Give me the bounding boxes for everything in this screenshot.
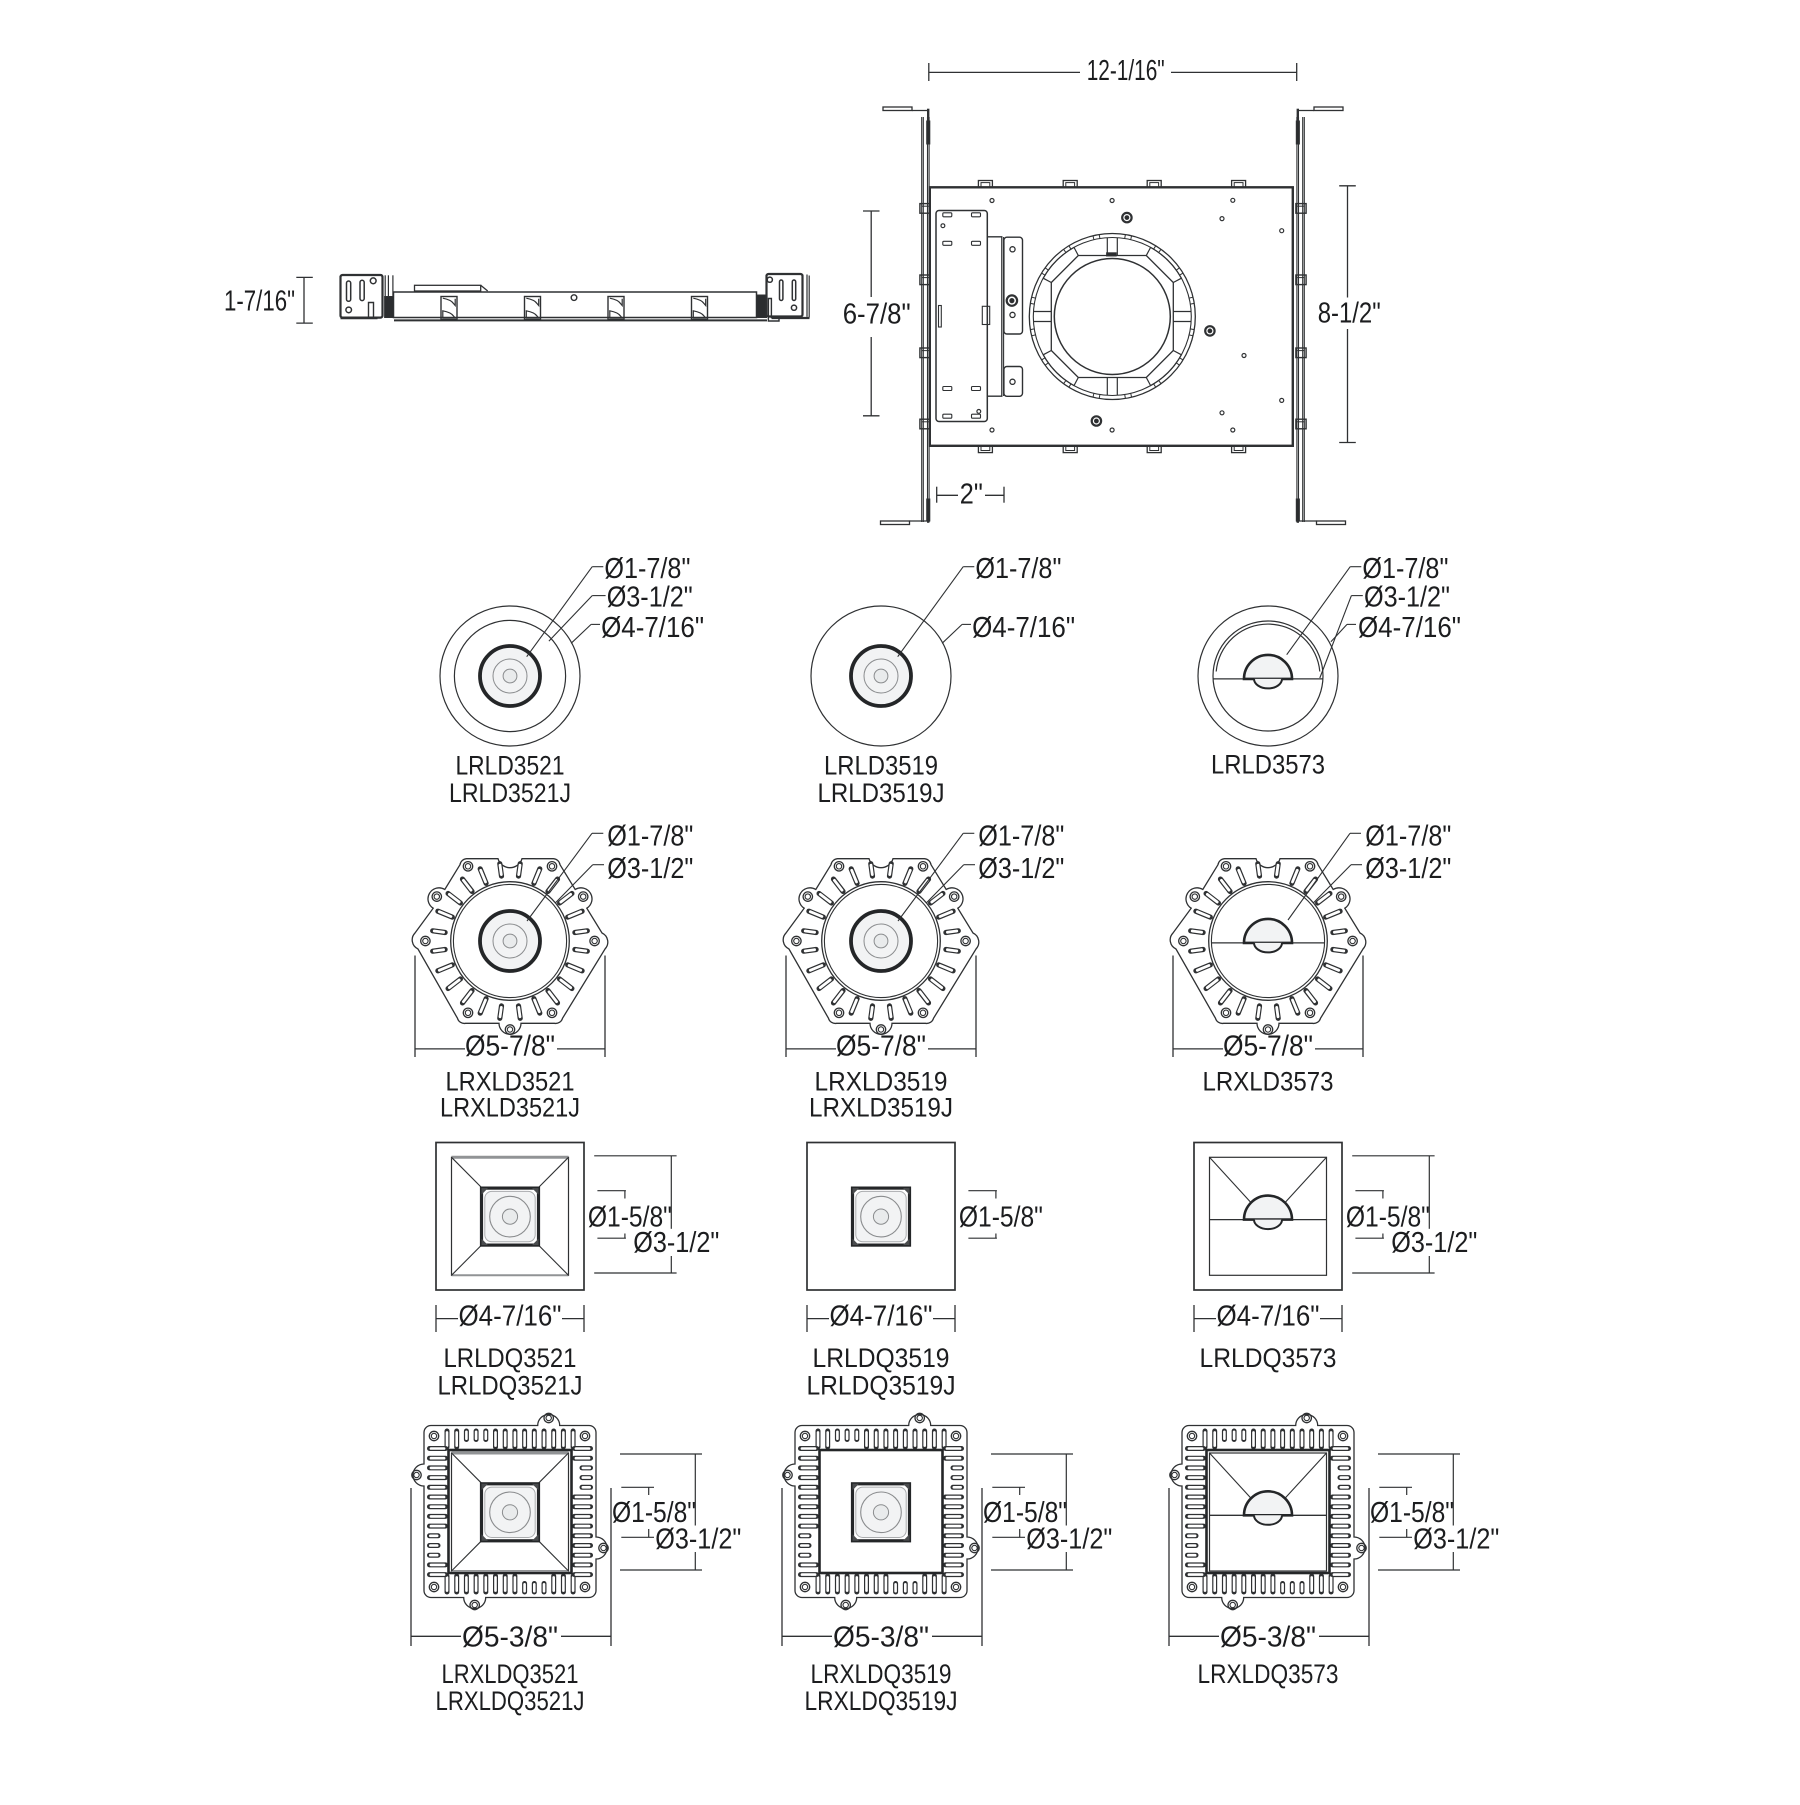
svg-text:Ø5-7/8": Ø5-7/8" [836,1031,926,1063]
svg-text:LRXLDQ3519: LRXLDQ3519 [811,1659,952,1689]
svg-text:Ø4-7/16": Ø4-7/16" [1358,612,1461,644]
svg-text:Ø5-7/8": Ø5-7/8" [465,1031,555,1063]
svg-text:Ø1-7/8": Ø1-7/8" [1365,820,1451,852]
svg-text:Ø4-7/16": Ø4-7/16" [972,612,1075,644]
svg-text:Ø1-7/8": Ø1-7/8" [1362,553,1448,585]
svg-text:Ø1-7/8": Ø1-7/8" [975,553,1061,585]
svg-text:Ø4-7/16": Ø4-7/16" [601,612,704,644]
svg-text:LRXLD3519J: LRXLD3519J [809,1093,953,1123]
svg-text:Ø1-7/8": Ø1-7/8" [604,553,690,585]
svg-text:Ø4-7/16": Ø4-7/16" [1217,1300,1320,1332]
svg-text:LRLD3521: LRLD3521 [456,750,565,780]
svg-text:12-1/16": 12-1/16" [1087,55,1165,87]
svg-text:LRLDQ3521J: LRLDQ3521J [438,1370,583,1400]
svg-text:Ø3-1/2": Ø3-1/2" [607,853,693,885]
svg-text:Ø3-1/2": Ø3-1/2" [978,853,1064,885]
svg-text:LRLDQ3519: LRLDQ3519 [813,1343,950,1373]
svg-text:Ø5-3/8": Ø5-3/8" [1220,1622,1316,1654]
svg-text:Ø3-1/2": Ø3-1/2" [607,582,693,614]
svg-text:Ø1-7/8": Ø1-7/8" [607,820,693,852]
svg-text:Ø3-1/2": Ø3-1/2" [1364,582,1450,614]
svg-text:2": 2" [960,478,983,510]
svg-text:LRXLD3521J: LRXLD3521J [440,1093,580,1123]
svg-text:Ø5-3/8": Ø5-3/8" [462,1622,558,1654]
svg-text:8-1/2": 8-1/2" [1318,298,1381,330]
svg-text:Ø5-3/8": Ø5-3/8" [833,1622,929,1654]
svg-text:Ø3-1/2": Ø3-1/2" [1026,1524,1112,1556]
svg-text:LRXLDQ3519J: LRXLDQ3519J [805,1686,958,1716]
svg-text:LRLDQ3521: LRLDQ3521 [444,1343,577,1373]
svg-text:Ø3-1/2": Ø3-1/2" [655,1524,741,1556]
svg-text:LRLDQ3573: LRLDQ3573 [1200,1343,1337,1373]
svg-text:LRXLD3573: LRXLD3573 [1203,1067,1334,1097]
svg-text:Ø5-7/8": Ø5-7/8" [1223,1031,1313,1063]
svg-text:Ø4-7/16": Ø4-7/16" [459,1300,562,1332]
svg-text:Ø3-1/2": Ø3-1/2" [633,1227,719,1259]
svg-text:LRLD3521J: LRLD3521J [449,778,571,808]
svg-text:Ø3-1/2": Ø3-1/2" [1365,853,1451,885]
svg-text:Ø3-1/2": Ø3-1/2" [1391,1227,1477,1259]
svg-text:LRLD3573: LRLD3573 [1211,749,1325,779]
svg-text:LRXLDQ3521: LRXLDQ3521 [442,1659,579,1689]
svg-text:LRXLDQ3573: LRXLDQ3573 [1198,1659,1339,1689]
svg-text:LRLD3519J: LRLD3519J [818,778,945,808]
svg-text:LRLDQ3519J: LRLDQ3519J [807,1370,956,1400]
svg-text:1-7/16": 1-7/16" [224,286,295,318]
svg-text:Ø3-1/2": Ø3-1/2" [1413,1524,1499,1556]
svg-text:6-7/8": 6-7/8" [843,298,911,330]
svg-text:Ø1-7/8": Ø1-7/8" [978,820,1064,852]
svg-text:Ø4-7/16": Ø4-7/16" [830,1300,933,1332]
svg-text:LRXLDQ3521J: LRXLDQ3521J [436,1686,585,1716]
svg-text:LRLD3519: LRLD3519 [824,750,938,780]
svg-text:Ø1-5/8": Ø1-5/8" [959,1202,1043,1234]
